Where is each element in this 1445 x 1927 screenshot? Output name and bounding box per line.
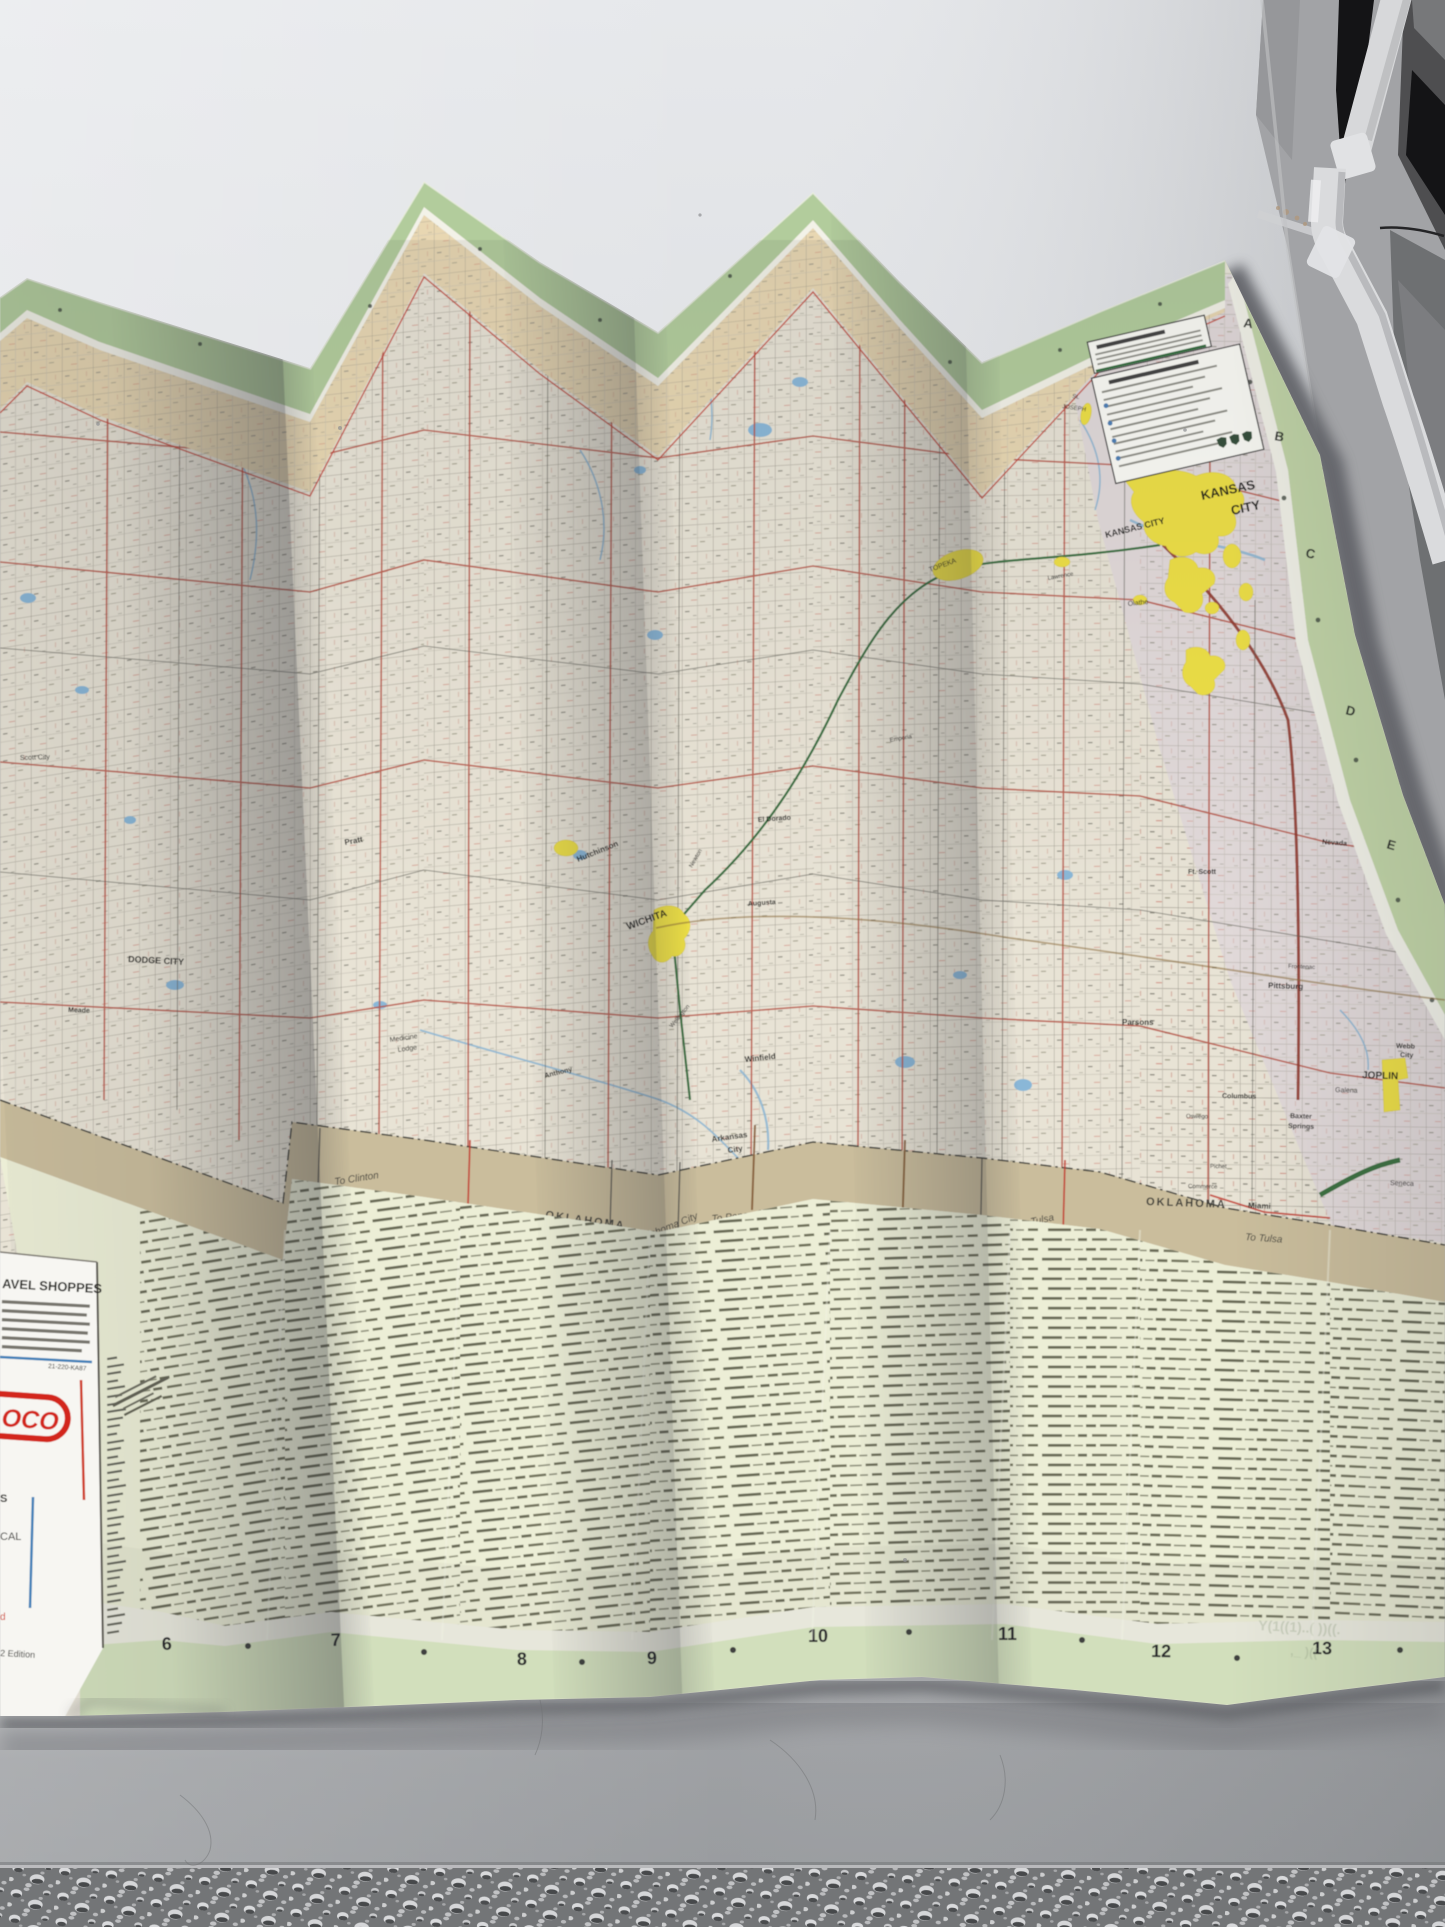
svg-text:10: 10 [808, 1626, 828, 1646]
svg-text:d: d [0, 1612, 6, 1623]
svg-text:CAL: CAL [0, 1531, 21, 1543]
svg-text:Oswego: Oswego [1186, 1114, 1209, 1120]
svg-text:Parsons: Parsons [1122, 1018, 1154, 1027]
svg-text:Commerce: Commerce [1188, 1184, 1218, 1191]
svg-text:12: 12 [1151, 1641, 1171, 1661]
svg-text:OCO: OCO [1, 1404, 60, 1436]
svg-text:Pichet: Pichet [1210, 1164, 1227, 1170]
svg-text:2 Edition: 2 Edition [0, 1648, 35, 1660]
svg-text:8: 8 [517, 1649, 527, 1669]
svg-text:S: S [0, 1493, 7, 1505]
